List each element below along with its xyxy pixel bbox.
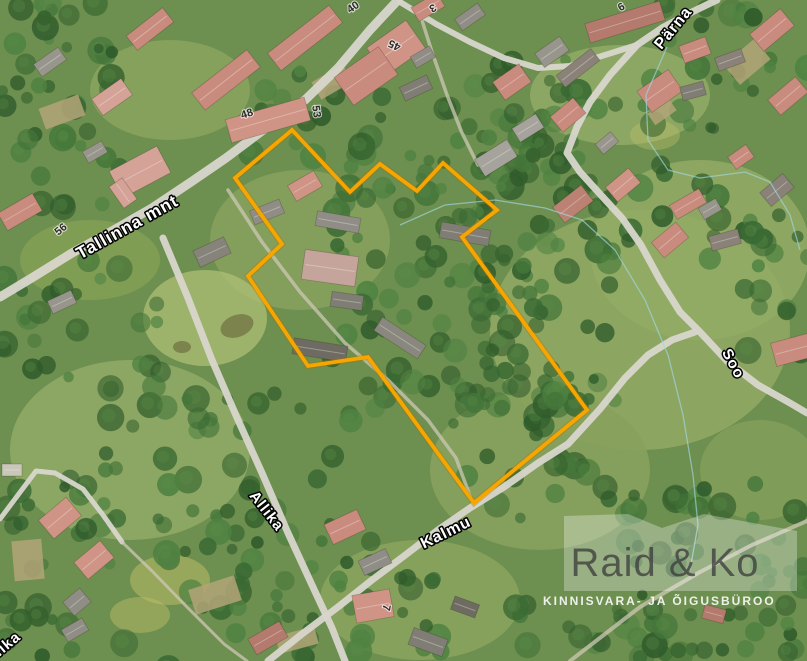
- aerial-imagery: Tallinna mntPärnaSooAllikaKalmuAllika403…: [0, 0, 807, 661]
- watermark-banner-shape: [564, 514, 797, 591]
- pond: [173, 341, 191, 353]
- house-number-label: 53: [309, 105, 323, 119]
- satellite-map-viewport[interactable]: Tallinna mntPärnaSooAllikaKalmuAllika403…: [0, 0, 807, 661]
- garden-plot: [11, 539, 44, 581]
- watermark-shape-layer: [564, 514, 797, 591]
- building: [2, 464, 22, 476]
